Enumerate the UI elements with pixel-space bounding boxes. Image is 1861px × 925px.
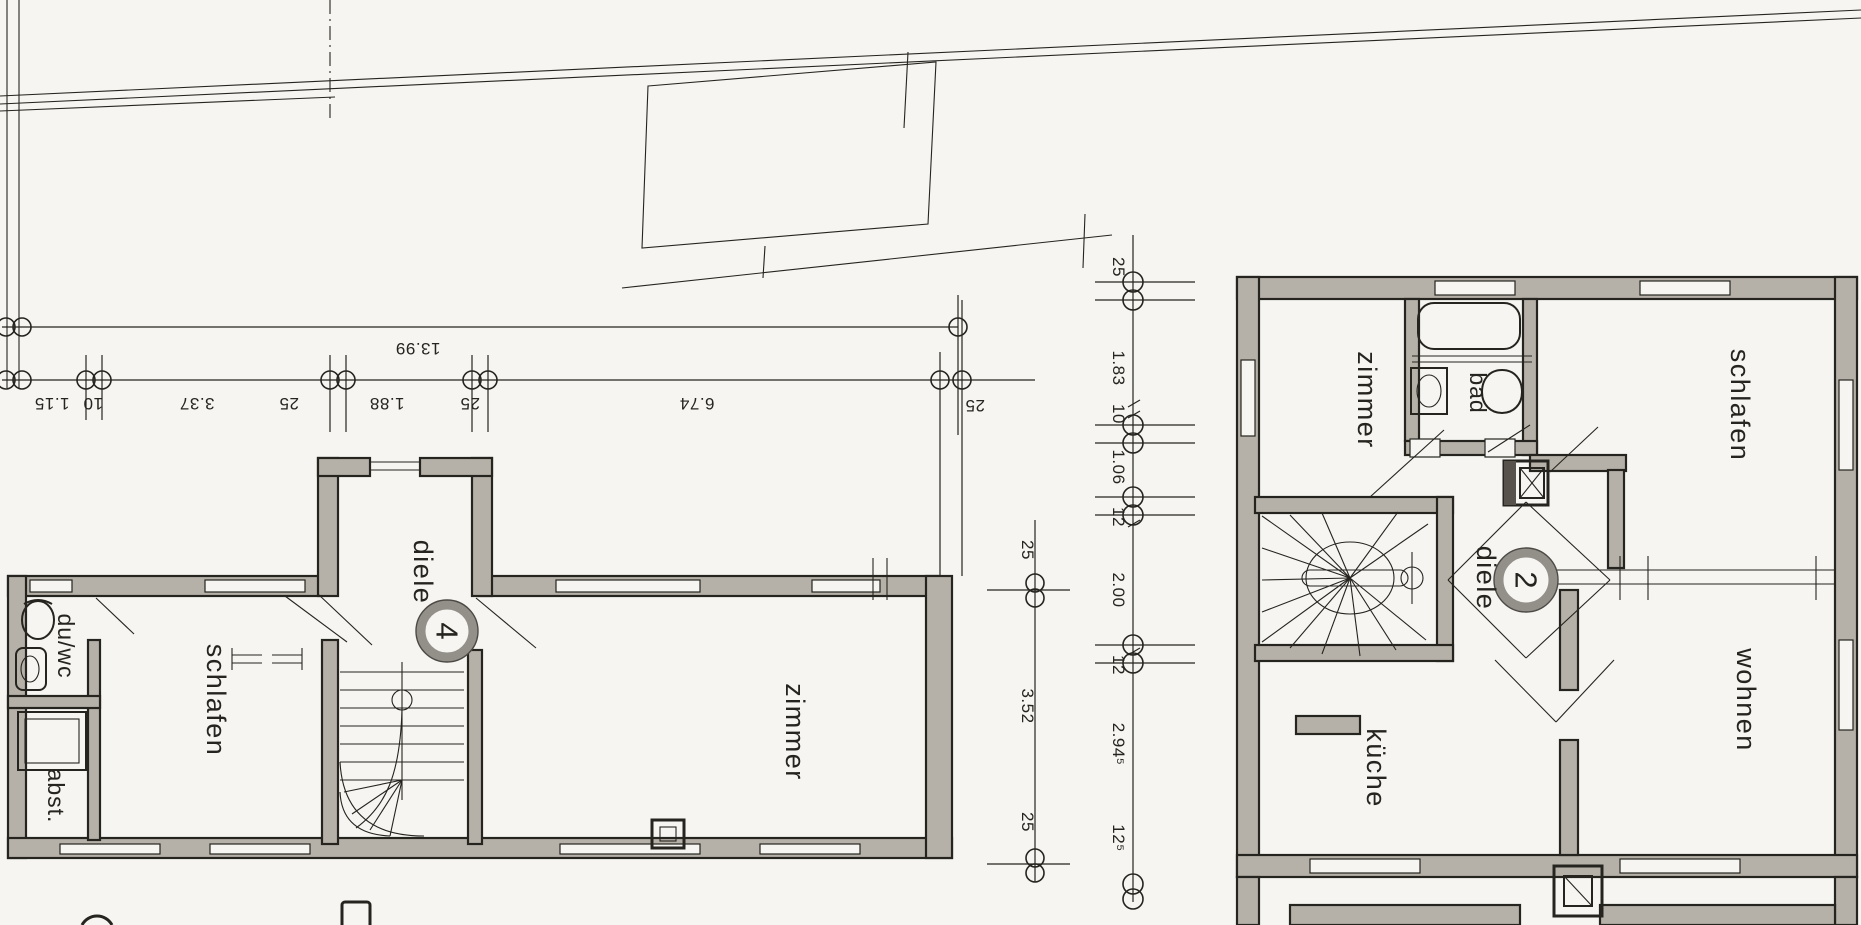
dim-v-seg: 3.52 (1018, 688, 1037, 723)
cut-off-fixtures-bottom (82, 902, 370, 925)
unit-number-right: 2 (1509, 571, 1544, 588)
floor-plan-sheet: 13.99 1.15 10 3.37 25 1.88 25 6.74 25 25… (0, 0, 1861, 925)
right-unit-plan: 2 zimmer bad schlafen diele wohnen küche (1237, 277, 1857, 925)
dim-h-seg: 6.74 (679, 394, 714, 413)
dim-v-seg: 1.06 (1109, 449, 1128, 484)
room-label-diele-right: diele (1471, 546, 1501, 611)
room-label-zimmer-left: zimmer (780, 683, 810, 781)
vertical-dimension-chain-right: 25 1.83 10 1.06 12 2.00 12 2.94⁵ 12⁵ (1095, 235, 1195, 909)
room-label-bad: bad (1465, 372, 1491, 413)
chimney-icon (1504, 461, 1548, 505)
site-boundary-lines (0, 0, 1861, 388)
vertical-dimension-chain-left: 25 3.52 25 (987, 520, 1070, 882)
room-label-kueche: küche (1361, 728, 1391, 808)
dim-h-seg: 3.37 (179, 394, 214, 413)
staircase-right (1262, 512, 1428, 656)
roof-outline (622, 62, 1112, 288)
unit-number-circle-left: 4 (416, 600, 478, 662)
left-unit-plan: 4 du/wc abst. schlafen diele zimmer (8, 458, 952, 858)
dim-h-seg: 1.15 (34, 394, 69, 413)
dim-v-seg: 12 (1109, 507, 1128, 527)
dim-v-seg: 10 (1109, 404, 1128, 424)
unit-number-left: 4 (430, 622, 465, 639)
dim-v-seg: 25 (1018, 540, 1037, 560)
room-label-abst: abst. (43, 769, 69, 824)
dim-v-seg: 1.83 (1109, 350, 1128, 385)
room-label-zimmer-right: zimmer (1352, 351, 1382, 449)
horizontal-dimension-chain: 13.99 1.15 10 3.37 25 1.88 25 6.74 25 (0, 295, 1035, 576)
storage-fixture-icon (18, 712, 86, 770)
floor-plan-drawing: 13.99 1.15 10 3.37 25 1.88 25 6.74 25 25… (0, 0, 1861, 925)
dim-v-seg: 25 (1018, 812, 1037, 832)
dim-v-seg: 25 (1109, 257, 1128, 277)
staircase-left (340, 662, 464, 836)
dim-v-seg: 12⁵ (1109, 824, 1128, 851)
dim-h-seg: 10 (83, 394, 103, 413)
dim-h-seg: 25 (965, 396, 985, 415)
dim-h-seg: 25 (279, 394, 299, 413)
room-label-duwc: du/wc (53, 613, 79, 678)
dim-v-seg: 2.00 (1109, 572, 1128, 607)
beam-direction-marks (232, 648, 302, 670)
room-label-diele-left: diele (408, 540, 438, 605)
room-label-schlafen-left: schlafen (201, 644, 231, 757)
dim-h-seg: 1.88 (369, 394, 404, 413)
bathtub-icon (1412, 303, 1532, 362)
dim-h-seg: 25 (460, 394, 480, 413)
dim-total-width: 13.99 (395, 339, 440, 358)
dim-v-seg: 12 (1109, 655, 1128, 675)
room-label-schlafen-right: schlafen (1725, 349, 1755, 462)
unit-number-circle-right: 2 (1494, 548, 1558, 612)
dim-v-seg: 2.94⁵ (1109, 723, 1128, 766)
room-label-wohnen: wohnen (1731, 647, 1761, 752)
